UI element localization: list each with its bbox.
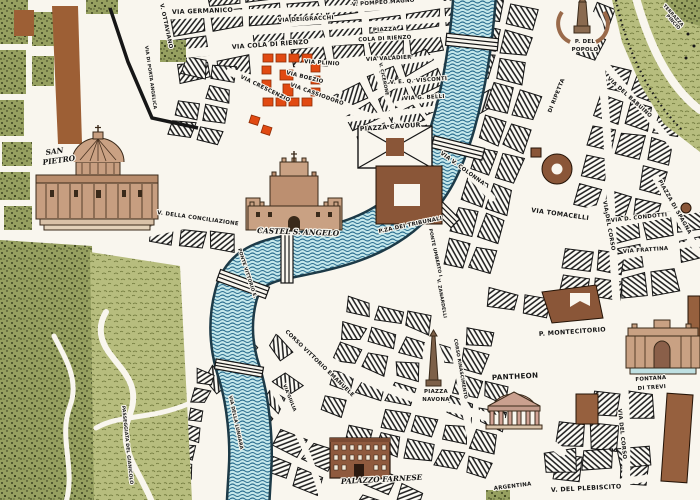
map-canvas: VIA GERMANICO VIA DEI GRACCHI VIA COLA D… xyxy=(0,0,700,500)
city-block xyxy=(562,248,593,272)
tribunali-brown-block xyxy=(376,166,442,224)
city-block xyxy=(555,422,584,448)
label-p-popolo-2: POPOLO xyxy=(572,47,599,53)
label-navona-2: NAVONA xyxy=(422,397,450,403)
city-block xyxy=(188,408,203,422)
label-p-popolo-1: P. DEL xyxy=(575,39,596,45)
palazzo-montecitorio xyxy=(542,285,603,323)
label-piazza-cola-1: PIAZZA xyxy=(373,26,398,33)
city-block xyxy=(581,449,614,470)
trevi-fountain xyxy=(626,320,700,374)
city-block xyxy=(179,229,206,248)
city-block xyxy=(588,423,618,452)
rome-illustrated-map: VIA GERMANICO VIA DEI GRACCHI VIA COLA D… xyxy=(0,0,700,500)
label-navona-1: PIAZZA xyxy=(424,389,448,395)
palazzo-farnese xyxy=(330,438,390,478)
city-block xyxy=(649,268,679,296)
